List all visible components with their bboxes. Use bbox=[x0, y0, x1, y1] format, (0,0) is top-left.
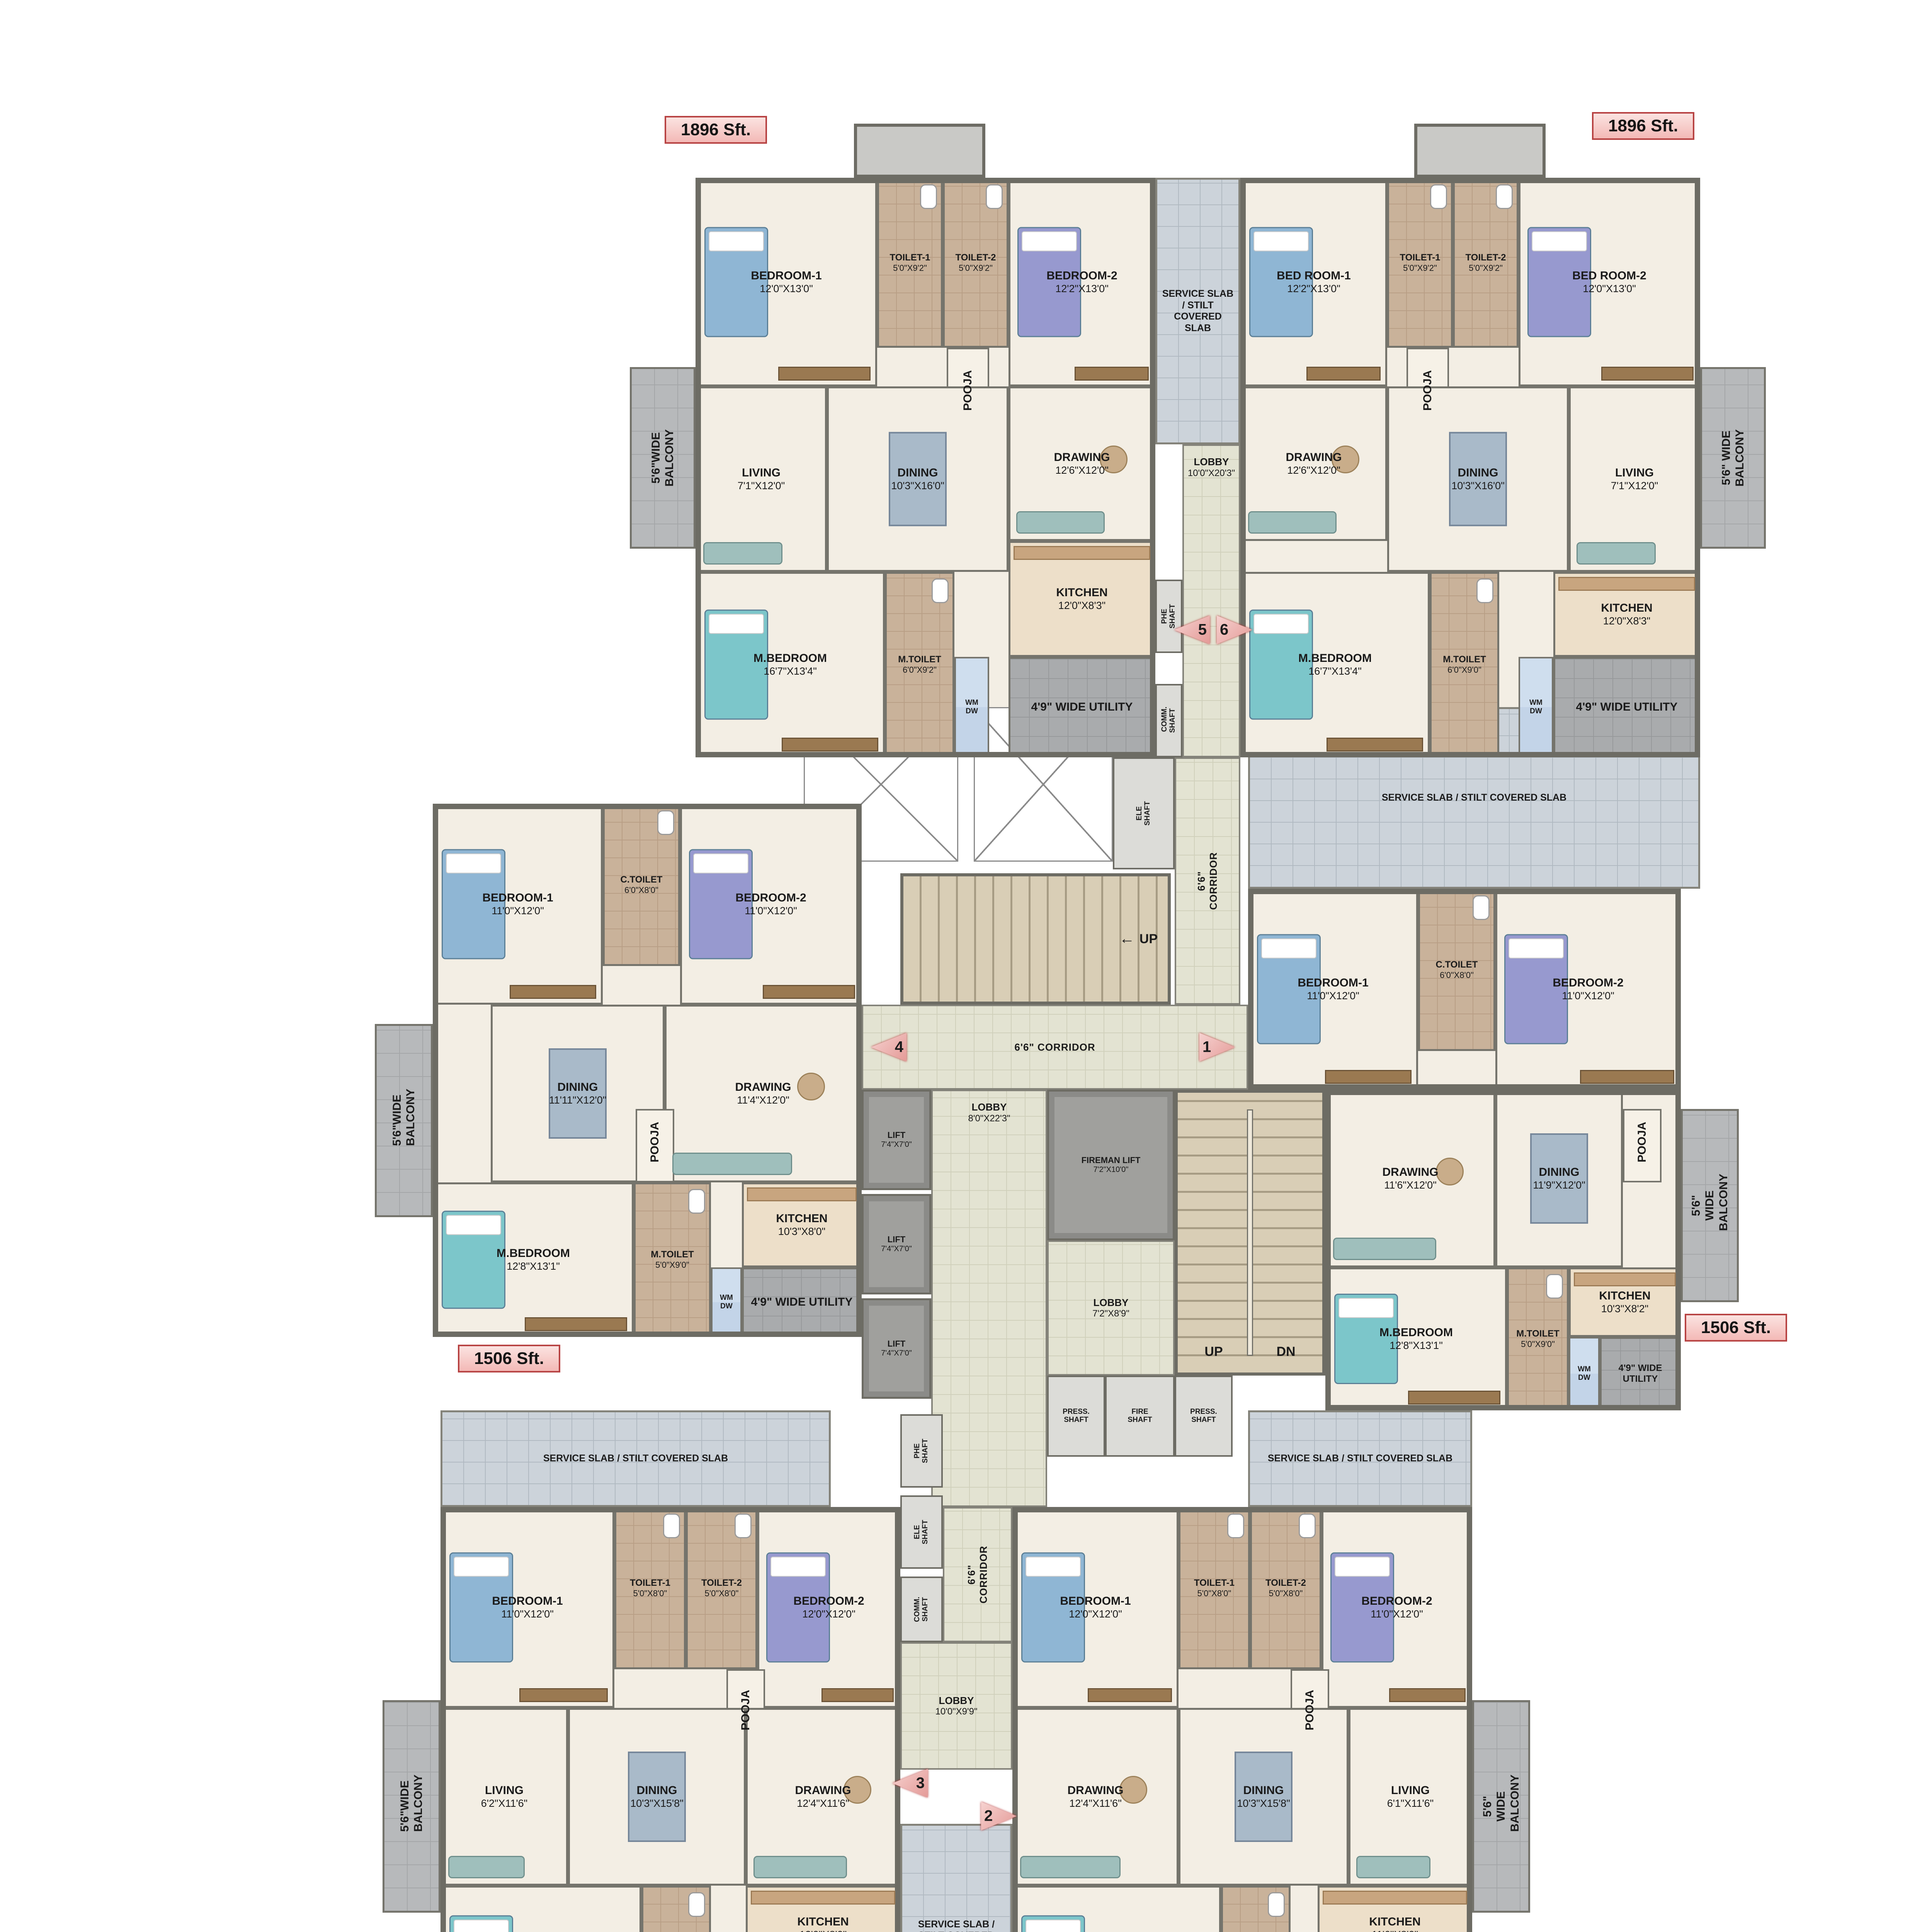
f5-wm-name: WM bbox=[1529, 699, 1543, 707]
f5-wm-label: WMDW bbox=[1520, 658, 1552, 756]
press-shaft-1-name: PRESS. bbox=[1063, 1408, 1090, 1416]
comm-shaft-top-name: COMM. bbox=[1161, 709, 1169, 732]
f1-kitchen-dims: 10'3"X8'2" bbox=[1601, 1303, 1649, 1315]
f5-bedroom-1: BED ROOM-112'2"X13'0" bbox=[1240, 178, 1387, 386]
f4-mtoilet-name: M.TOILET bbox=[651, 1249, 694, 1260]
wardrobe-icon bbox=[1088, 1688, 1172, 1702]
lobby-fireman-label: LOBBY7'2"X8'9" bbox=[1049, 1242, 1173, 1374]
f4-ctoilet: C.TOILET6'0"X8'0" bbox=[603, 804, 680, 966]
f2-living: LIVING6'1"X11'6" bbox=[1349, 1708, 1472, 1886]
flat-marker-1-number: 1 bbox=[1202, 1039, 1211, 1056]
f1-ctoilet-name: C.TOILET bbox=[1436, 959, 1478, 970]
f4-utility-label: 4'9" WIDE UTILITY bbox=[744, 1269, 860, 1335]
f5-toilet-1-dims: 5'0"X9'2" bbox=[1403, 263, 1437, 273]
toilet-fixture-icon bbox=[1299, 1514, 1316, 1538]
lift-1-dims: 7'4"X7'0" bbox=[881, 1140, 912, 1150]
f1-mtoilet: M.TOILET5'0"X9'0" bbox=[1507, 1267, 1569, 1410]
f1-bedroom-2: BEDROOM-211'0"X12'0" bbox=[1495, 889, 1681, 1090]
comm-shaft-top-dims: SHAFT bbox=[1169, 708, 1177, 733]
up-arrow-icon: ← bbox=[1119, 930, 1135, 948]
f3-mbedroom: M.BEDROOM15'4"X13'1" bbox=[440, 1886, 641, 1932]
f1-ctoilet: C.TOILET6'0"X8'0" bbox=[1418, 889, 1495, 1051]
f6-mtoilet: M.TOILET6'0"X9'2" bbox=[885, 572, 954, 757]
coffee-table-icon bbox=[797, 1073, 825, 1100]
toilet-fixture-icon bbox=[663, 1514, 680, 1538]
coffee-table-icon bbox=[1100, 446, 1128, 473]
wardrobe-icon bbox=[782, 738, 878, 752]
stilt-box-right bbox=[1414, 124, 1546, 178]
bed-icon bbox=[1017, 227, 1081, 337]
f2-mtoilet: M.TOILET6'0"X9'2" bbox=[1221, 1886, 1291, 1932]
f1-mtoilet-dims: 5'0"X9'0" bbox=[1521, 1339, 1555, 1349]
flat-marker-1: 1 bbox=[1199, 1033, 1235, 1061]
comm-shaft-bottom-name: COMM. bbox=[913, 1597, 922, 1622]
f6-kitchen-dims: 12'0"X8'3" bbox=[1058, 600, 1106, 612]
toilet-fixture-icon bbox=[688, 1892, 705, 1917]
sofa-icon bbox=[448, 1856, 525, 1878]
f4-drawing-name: DRAWING bbox=[735, 1080, 791, 1094]
f4-utility: 4'9" WIDE UTILITY bbox=[742, 1267, 862, 1337]
f2-bedroom-2: BEDROOM-211'0"X12'0" bbox=[1321, 1507, 1472, 1708]
flat-marker-5: 5 bbox=[1174, 616, 1210, 644]
f4-balcony: 5'6"WIDE BALCONY bbox=[375, 1024, 433, 1217]
phe-shaft-top-name: PHE bbox=[1161, 609, 1169, 624]
kitchen-counter-icon bbox=[751, 1891, 895, 1905]
flat-marker-6-number: 6 bbox=[1220, 621, 1228, 639]
f6-toilet-1-dims: 5'0"X9'2" bbox=[893, 263, 927, 273]
f1-wm: WMDW bbox=[1569, 1337, 1600, 1410]
service-slab-bottom-label: SERVICE SLAB / STILT COVERED SLAB bbox=[902, 1826, 1010, 1932]
f4-ctoilet-name: C.TOILET bbox=[621, 874, 663, 885]
dining-table-icon bbox=[549, 1048, 607, 1139]
f4-wm-label: WMDW bbox=[713, 1269, 740, 1335]
f1-ctoilet-dims: 6'0"X8'0" bbox=[1440, 970, 1474, 980]
f5-bedroom-2: BED ROOM-212'0"X13'0" bbox=[1519, 178, 1700, 386]
phe-shaft-bottom-dims: SHAFT bbox=[922, 1439, 930, 1463]
lift-2-dims: 7'4"X7'0" bbox=[881, 1245, 912, 1254]
toilet-fixture-icon bbox=[932, 578, 949, 603]
f3-mtoilet: M.TOILET6'0"X8'8" bbox=[641, 1886, 711, 1932]
corridor-main-label: 6'6" CORRIDOR bbox=[863, 1006, 1247, 1088]
f6-living-dims: 7'1"X12'0" bbox=[738, 480, 785, 492]
pillow-icon bbox=[709, 614, 764, 634]
f3-toilet-2: TOILET-25'0"X8'0" bbox=[686, 1507, 757, 1669]
bed-icon bbox=[1527, 227, 1591, 337]
f5-living: LIVING7'1"X12'0" bbox=[1569, 386, 1700, 572]
pillow-icon bbox=[1253, 614, 1309, 634]
f3-drawing-dims: 12'4"X11'6" bbox=[797, 1798, 849, 1810]
f2-toilet-1-dims: 5'0"X8'0" bbox=[1197, 1588, 1231, 1599]
toilet-fixture-icon bbox=[735, 1514, 752, 1538]
f2-kitchen-dims: 11'6"X8'0" bbox=[1372, 1929, 1418, 1932]
f3-bedroom-2: BEDROOM-212'0"X12'0" bbox=[757, 1507, 900, 1708]
f2-drawing: DRAWING12'4"X11'6" bbox=[1012, 1708, 1179, 1886]
sofa-icon bbox=[672, 1153, 792, 1175]
fireman-lift: FIREMAN LIFT7'2"X10'0" bbox=[1047, 1090, 1175, 1240]
f3-kitchen-name: KITCHEN bbox=[797, 1915, 849, 1929]
f1-pooja-name: POOJA bbox=[1635, 1129, 1649, 1162]
bed-icon bbox=[442, 1211, 505, 1309]
stair-core-dims: DN bbox=[1276, 1344, 1295, 1359]
wardrobe-icon bbox=[1601, 367, 1694, 381]
f1-mtoilet-name: M.TOILET bbox=[1516, 1328, 1560, 1339]
service-slab-left-name: SERVICE SLAB / STILT COVERED SLAB bbox=[543, 1453, 728, 1464]
f5-kitchen-name: KITCHEN bbox=[1601, 601, 1652, 615]
floor-plan: SERVICE SLAB / STILT COVERED SLABSERVICE… bbox=[0, 0, 1932, 1932]
service-slab-right-name: SERVICE SLAB / STILT COVERED SLAB bbox=[1268, 1453, 1452, 1464]
f2-toilet-1: TOILET-15'0"X8'0" bbox=[1179, 1507, 1250, 1669]
f6-kitchen-name: KITCHEN bbox=[1056, 586, 1107, 599]
f3-toilet-2-name: TOILET-2 bbox=[701, 1578, 742, 1588]
service-slab-right-label: SERVICE SLAB / STILT COVERED SLAB bbox=[1250, 1412, 1470, 1505]
sofa-icon bbox=[1248, 511, 1337, 534]
f5-drawing: DRAWING12'6"X12'0" bbox=[1240, 386, 1387, 541]
comm-shaft-bottom-dims: SHAFT bbox=[922, 1597, 930, 1621]
f2-mbedroom: M.BEDROOM15'10"X13'1" bbox=[1012, 1886, 1221, 1932]
f3-bedroom-1: BEDROOM-111'0"X12'0" bbox=[440, 1507, 614, 1708]
stair-upper-label: ←UP bbox=[903, 876, 1168, 1002]
comm-shaft-top: COMM.SHAFT bbox=[1155, 684, 1182, 757]
f2-toilet-1-name: TOILET-1 bbox=[1194, 1578, 1235, 1588]
f4-bedroom-2: BEDROOM-211'0"X12'0" bbox=[680, 804, 862, 1005]
sofa-icon bbox=[753, 1856, 847, 1878]
press-shaft-1: PRESS.SHAFT bbox=[1047, 1376, 1105, 1457]
pillow-icon bbox=[1509, 939, 1564, 959]
pillow-icon bbox=[1026, 1920, 1081, 1932]
f5-balcony-name: 5'6" WIDE BALCONY bbox=[1719, 429, 1747, 487]
f3-toilet-1: TOILET-15'0"X8'0" bbox=[614, 1507, 686, 1669]
f1-kitchen-name: KITCHEN bbox=[1599, 1289, 1650, 1303]
f5-mtoilet-name: M.TOILET bbox=[1443, 654, 1486, 665]
bed-icon bbox=[1334, 1294, 1398, 1384]
pillow-icon bbox=[770, 1557, 826, 1577]
service-slab-mid-right-name: SERVICE SLAB / STILT COVERED SLAB bbox=[1382, 792, 1566, 804]
f6-living-name: LIVING bbox=[742, 466, 781, 480]
stair-core: UPDN bbox=[1175, 1090, 1325, 1376]
kitchen-counter-icon bbox=[1323, 1891, 1467, 1905]
ele-shaft-top-dims: SHAFT bbox=[1144, 801, 1152, 825]
f6-bedroom-1: BEDROOM-112'0"X13'0" bbox=[696, 178, 877, 386]
f1-drawing: DRAWING11'6"X12'0" bbox=[1325, 1090, 1495, 1267]
bed-icon bbox=[1504, 934, 1568, 1044]
service-slab-bottom-name: SERVICE SLAB / STILT COVERED SLAB bbox=[905, 1919, 1007, 1932]
pillow-icon bbox=[454, 1557, 509, 1577]
f2-balcony-name: 5'6" WIDE BALCONY bbox=[1481, 1781, 1522, 1832]
service-slab-right: SERVICE SLAB / STILT COVERED SLAB bbox=[1248, 1410, 1472, 1507]
f5-utility-name: 4'9" WIDE UTILITY bbox=[1576, 700, 1677, 714]
bed-icon bbox=[449, 1553, 513, 1663]
f3-toilet-2-dims: 5'0"X8'0" bbox=[705, 1588, 739, 1599]
service-slab-bottom: SERVICE SLAB / STILT COVERED SLAB bbox=[900, 1824, 1012, 1932]
f3-living-name: LIVING bbox=[485, 1784, 524, 1797]
f1-balcony-name: 5'6" WIDE BALCONY bbox=[1689, 1180, 1730, 1231]
f5-dining: DINING10'3"X16'0" bbox=[1387, 386, 1569, 572]
f1-pooja: POOJA bbox=[1623, 1109, 1662, 1182]
lobby-top-dims: 10'0"X20'3" bbox=[1188, 468, 1235, 479]
coffee-table-icon bbox=[1332, 446, 1359, 473]
corridor-lower-name: 6'6" CORRIDOR bbox=[966, 1543, 989, 1606]
lobby-top: LOBBY10'0"X20'3" bbox=[1182, 444, 1240, 757]
lift-3: LIFT7'4"X7'0" bbox=[862, 1298, 931, 1399]
f2-living-dims: 6'1"X11'6" bbox=[1387, 1798, 1434, 1810]
fire-shaft: FIRESHAFT bbox=[1105, 1376, 1175, 1457]
f3-living-dims: 6'2"X11'6" bbox=[481, 1798, 528, 1810]
f1-balcony: 5'6" WIDE BALCONY bbox=[1681, 1109, 1739, 1302]
f4-ctoilet-dims: 6'0"X8'0" bbox=[624, 885, 658, 895]
f4-pooja: POOJA bbox=[636, 1109, 674, 1182]
lift-2: LIFT7'4"X7'0" bbox=[862, 1194, 931, 1294]
f6-drawing-dims: 12'6"X12'0" bbox=[1055, 464, 1109, 477]
kitchen-counter-icon bbox=[1574, 1272, 1676, 1286]
pillow-icon bbox=[446, 854, 501, 874]
service-slab-left: SERVICE SLAB / STILT COVERED SLAB bbox=[440, 1410, 831, 1507]
f3-dining: DINING10'3"X15'8" bbox=[568, 1708, 746, 1886]
lift-3-label: LIFT7'4"X7'0" bbox=[864, 1300, 929, 1397]
lobby-bottom-name: LOBBY bbox=[939, 1695, 974, 1707]
f5-kitchen: KITCHEN12'0"X8'3" bbox=[1553, 572, 1700, 657]
toilet-fixture-icon bbox=[920, 184, 937, 209]
f5-mbedroom: M.BEDROOM16'7"X13'4" bbox=[1240, 572, 1430, 757]
f6-balcony-name: 5'6"WIDE BALCONY bbox=[649, 429, 677, 487]
kitchen-counter-icon bbox=[1558, 577, 1695, 591]
toilet-fixture-icon bbox=[986, 184, 1003, 209]
f6-wm: WMDW bbox=[954, 657, 989, 757]
service-slab-left-label: SERVICE SLAB / STILT COVERED SLAB bbox=[442, 1412, 829, 1505]
pillow-icon bbox=[1532, 231, 1587, 252]
lobby-core-name: LOBBY bbox=[972, 1101, 1007, 1113]
dining-table-icon bbox=[1235, 1752, 1293, 1842]
f6-drawing: DRAWING12'6"X12'0" bbox=[1009, 386, 1155, 541]
f5-mtoilet-dims: 6'0"X9'0" bbox=[1447, 665, 1481, 675]
pillow-icon bbox=[693, 854, 748, 874]
f5-kitchen-dims: 12'0"X8'3" bbox=[1603, 615, 1651, 628]
fire-shaft-name: FIRE bbox=[1131, 1408, 1148, 1416]
lobby-bottom: LOBBY10'0"X9'9" bbox=[900, 1642, 1012, 1770]
lift-1-name: LIFT bbox=[888, 1130, 905, 1140]
f4-mbedroom-dims: 12'8"X13'1" bbox=[507, 1260, 560, 1273]
toilet-fixture-icon bbox=[1268, 1892, 1285, 1917]
f1-drawing-dims: 11'6"X12'0" bbox=[1384, 1179, 1437, 1192]
f2-toilet-2: TOILET-25'0"X8'0" bbox=[1250, 1507, 1321, 1669]
badge-1896-right: 1896 Sft. bbox=[1592, 112, 1694, 140]
f3-living: LIVING6'2"X11'6" bbox=[440, 1708, 568, 1886]
f5-toilet-2-name: TOILET-2 bbox=[1466, 252, 1506, 263]
ele-shaft-top-name: ELE bbox=[1136, 806, 1144, 821]
bed-icon bbox=[442, 849, 505, 959]
lobby-core: LOBBY8'0"X22'3" bbox=[931, 1090, 1047, 1507]
dining-table-icon bbox=[628, 1752, 686, 1842]
corridor-lower: 6'6" CORRIDOR bbox=[943, 1507, 1012, 1642]
lift-2-label: LIFT7'4"X7'0" bbox=[864, 1196, 929, 1293]
pillow-icon bbox=[454, 1920, 509, 1932]
corridor-upper-name: 6'6" CORRIDOR bbox=[1196, 852, 1219, 910]
sofa-icon bbox=[1020, 1856, 1121, 1878]
f2-toilet-2-name: TOILET-2 bbox=[1265, 1578, 1306, 1588]
wardrobe-icon bbox=[510, 985, 596, 999]
f1-utility: 4'9" WIDE UTILITY bbox=[1600, 1337, 1681, 1410]
f6-balcony: 5'6"WIDE BALCONY bbox=[630, 367, 696, 549]
f5-utility: 4'9" WIDE UTILITY bbox=[1553, 657, 1700, 757]
stilt-box-left bbox=[854, 124, 985, 178]
f5-toilet-1-name: TOILET-1 bbox=[1400, 252, 1440, 263]
f2-dining: DINING10'3"X15'8" bbox=[1179, 1708, 1349, 1886]
f1-kitchen: KITCHEN10'3"X8'2" bbox=[1569, 1267, 1681, 1337]
phe-shaft-bottom: PHESHAFT bbox=[900, 1414, 943, 1488]
press-shaft-1-label: PRESS.SHAFT bbox=[1049, 1377, 1104, 1455]
wardrobe-icon bbox=[821, 1688, 894, 1702]
f4-mbedroom: M.BEDROOM12'8"X13'1" bbox=[433, 1182, 634, 1337]
comm-shaft-bottom: COMM.SHAFT bbox=[900, 1577, 943, 1642]
lobby-fireman-name: LOBBY bbox=[1094, 1297, 1129, 1309]
f6-mtoilet-name: M.TOILET bbox=[898, 654, 941, 665]
f5-mtoilet: M.TOILET6'0"X9'0" bbox=[1430, 572, 1499, 757]
wardrobe-icon bbox=[519, 1688, 608, 1702]
flat-marker-6: 6 bbox=[1217, 616, 1252, 644]
bed-icon bbox=[1249, 227, 1313, 337]
corridor-main-name: 6'6" CORRIDOR bbox=[1014, 1041, 1095, 1053]
wardrobe-icon bbox=[1389, 1688, 1466, 1702]
f6-utility-name: 4'9" WIDE UTILITY bbox=[1031, 700, 1133, 714]
f6-dining: DINING10'3"X16'0" bbox=[827, 386, 1009, 572]
service-slab-top-label: SERVICE SLAB / STILT COVERED SLAB bbox=[1157, 180, 1238, 442]
toilet-fixture-icon bbox=[657, 810, 674, 835]
flat-marker-3-number: 3 bbox=[916, 1775, 925, 1792]
ele-shaft-bottom-dims: SHAFT bbox=[922, 1520, 930, 1544]
bed-icon bbox=[1021, 1553, 1085, 1663]
f1-mbedroom: M.BEDROOM12'8"X13'1" bbox=[1325, 1267, 1507, 1410]
fire-shaft-label: FIRESHAFT bbox=[1107, 1377, 1173, 1455]
f4-kitchen-name: KITCHEN bbox=[776, 1212, 827, 1225]
f4-drawing-dims: 11'4"X12'0" bbox=[737, 1094, 789, 1107]
f4-mtoilet-dims: 5'0"X9'0" bbox=[655, 1260, 689, 1270]
sofa-icon bbox=[1333, 1238, 1436, 1260]
lobby-top-label: LOBBY10'0"X20'3" bbox=[1184, 446, 1239, 756]
f2-drawing-dims: 12'4"X11'6" bbox=[1069, 1798, 1122, 1810]
toilet-fixture-icon bbox=[1227, 1514, 1244, 1538]
sofa-icon bbox=[703, 542, 782, 565]
f5-living-name: LIVING bbox=[1615, 466, 1654, 480]
f2-toilet-2-dims: 5'0"X8'0" bbox=[1269, 1588, 1303, 1599]
f6-wm-dims: DW bbox=[966, 707, 978, 716]
f3-toilet-1-dims: 5'0"X8'0" bbox=[633, 1588, 667, 1599]
badge-1506-left: 1506 Sft. bbox=[458, 1345, 560, 1372]
flat-marker-4-number: 4 bbox=[895, 1039, 903, 1056]
wardrobe-icon bbox=[1325, 1070, 1412, 1084]
f3-kitchen: KITCHEN12'0"X8'0" bbox=[746, 1886, 900, 1932]
press-shaft-2-label: PRESS.SHAFT bbox=[1176, 1377, 1231, 1455]
f3-kitchen-dims: 12'0"X8'0" bbox=[799, 1929, 847, 1932]
bed-icon bbox=[1257, 934, 1321, 1044]
dining-table-icon bbox=[1530, 1133, 1588, 1224]
lift-3-dims: 7'4"X7'0" bbox=[881, 1349, 912, 1358]
f2-balcony: 5'6" WIDE BALCONY bbox=[1472, 1700, 1530, 1913]
ele-shaft-bottom-name: ELE bbox=[913, 1525, 922, 1539]
f1-bedroom-2-dims: 11'0"X12'0" bbox=[1562, 990, 1614, 1002]
badge-1896-left: 1896 Sft. bbox=[665, 116, 767, 144]
toilet-fixture-icon bbox=[1430, 184, 1447, 209]
fire-shaft-dims: SHAFT bbox=[1128, 1416, 1152, 1424]
f5-balcony: 5'6" WIDE BALCONY bbox=[1700, 367, 1766, 549]
wardrobe-icon bbox=[1408, 1391, 1500, 1405]
flat-marker-5-number: 5 bbox=[1198, 621, 1207, 639]
f6-living: LIVING7'1"X12'0" bbox=[696, 386, 827, 572]
press-shaft-2-name: PRESS. bbox=[1190, 1408, 1217, 1416]
f2-living-name: LIVING bbox=[1391, 1784, 1430, 1797]
f2-drawing-name: DRAWING bbox=[1068, 1784, 1124, 1797]
bed-icon bbox=[1330, 1553, 1394, 1663]
sofa-icon bbox=[1356, 1856, 1430, 1878]
f3-drawing: DRAWING12'4"X11'6" bbox=[746, 1708, 900, 1886]
pillow-icon bbox=[446, 1215, 501, 1235]
f4-mbedroom-name: M.BEDROOM bbox=[497, 1247, 570, 1260]
f5-toilet-2-dims: 5'0"X9'2" bbox=[1469, 263, 1503, 273]
f6-toilet-2: TOILET-25'0"X9'2" bbox=[943, 178, 1009, 348]
f1-wm-dims: DW bbox=[1578, 1374, 1590, 1382]
pillow-icon bbox=[1026, 1557, 1081, 1577]
f6-toilet-1: TOILET-15'0"X9'2" bbox=[877, 178, 943, 348]
f4-bedroom-1: BEDROOM-111'0"X12'0" bbox=[433, 804, 603, 1005]
ele-shaft-bottom: ELESHAFT bbox=[900, 1495, 943, 1569]
bed-icon bbox=[766, 1553, 830, 1663]
badge-1506-right: 1506 Sft. bbox=[1685, 1314, 1787, 1342]
f6-toilet-2-dims: 5'0"X9'2" bbox=[959, 263, 993, 273]
lift-1: LIFT7'4"X7'0" bbox=[862, 1090, 931, 1190]
fireman-lift-label: FIREMAN LIFT7'2"X10'0" bbox=[1049, 1092, 1173, 1238]
f6-wm-name: WM bbox=[965, 699, 978, 707]
f4-kitchen-dims: 10'3"X8'0" bbox=[778, 1226, 826, 1238]
fireman-lift-dims: 7'2"X10'0" bbox=[1094, 1165, 1129, 1175]
f5-toilet-2: TOILET-25'0"X9'2" bbox=[1453, 178, 1519, 348]
wardrobe-icon bbox=[778, 367, 871, 381]
bed-icon bbox=[704, 610, 768, 720]
f5-wm-dims: DW bbox=[1530, 707, 1542, 716]
f5-drawing-dims: 12'6"X12'0" bbox=[1287, 464, 1340, 477]
f2-bedroom-1: BEDROOM-112'0"X12'0" bbox=[1012, 1507, 1179, 1708]
pillow-icon bbox=[1338, 1298, 1394, 1318]
f1-wm-label: WMDW bbox=[1570, 1338, 1598, 1409]
bed-icon bbox=[449, 1915, 513, 1932]
f3-toilet-1-name: TOILET-1 bbox=[630, 1578, 670, 1588]
f6-mtoilet-dims: 6'0"X9'2" bbox=[903, 665, 937, 675]
toilet-fixture-icon bbox=[688, 1189, 705, 1214]
kitchen-counter-icon bbox=[1014, 546, 1150, 560]
wardrobe-icon bbox=[763, 985, 855, 999]
f4-pooja-name: POOJA bbox=[648, 1129, 662, 1162]
lobby-bottom-label: LOBBY10'0"X9'9" bbox=[902, 1644, 1011, 1768]
sofa-icon bbox=[1577, 542, 1656, 565]
f5-toilet-1: TOILET-15'0"X9'2" bbox=[1387, 178, 1453, 348]
kitchen-counter-icon bbox=[747, 1187, 857, 1201]
floorplan-sheet: SERVICE SLAB / STILT COVERED SLABSERVICE… bbox=[0, 0, 1932, 1932]
flat-marker-3: 3 bbox=[892, 1769, 928, 1798]
f6-toilet-2-name: TOILET-2 bbox=[956, 252, 996, 263]
toilet-fixture-icon bbox=[1496, 184, 1513, 209]
press-shaft-2-dims: SHAFT bbox=[1191, 1416, 1216, 1424]
lobby-bottom-dims: 10'0"X9'9" bbox=[935, 1706, 978, 1717]
pillow-icon bbox=[1261, 939, 1316, 959]
flat-marker-4: 4 bbox=[871, 1033, 906, 1061]
f4-balcony-name: 5'6"WIDE BALCONY bbox=[390, 1095, 418, 1146]
f1-bedroom-1: BEDROOM-111'0"X12'0" bbox=[1248, 889, 1418, 1090]
f2-kitchen-name: KITCHEN bbox=[1369, 1915, 1420, 1929]
lobby-top-name: LOBBY bbox=[1194, 456, 1229, 468]
stair-upper-name: UP bbox=[1139, 931, 1158, 947]
bed-icon bbox=[1249, 610, 1313, 720]
bed-icon bbox=[704, 227, 768, 337]
pillow-icon bbox=[709, 231, 764, 252]
wardrobe-icon bbox=[1580, 1070, 1674, 1084]
f6-mbedroom: M.BEDROOM16'7"X13'4" bbox=[696, 572, 885, 757]
